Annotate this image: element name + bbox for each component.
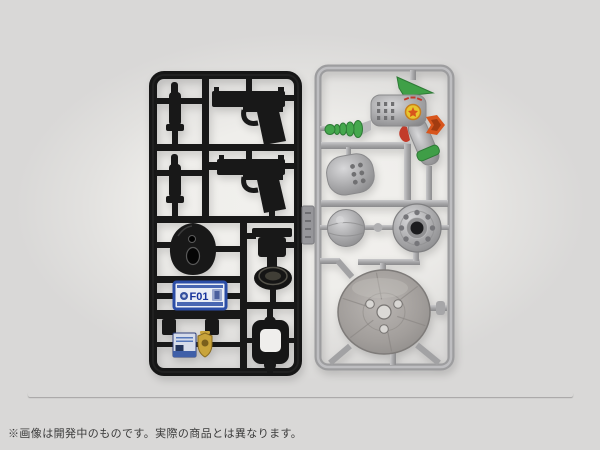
ray-gun-vents [377, 102, 394, 120]
runner-tag [302, 206, 314, 244]
long-rod-part [28, 392, 573, 397]
saucer-part [338, 270, 430, 354]
dome-part [328, 210, 365, 247]
license-plate-text: F01 [190, 291, 209, 303]
magazine-part-bottom [156, 154, 204, 216]
ray-gun-rings [325, 121, 363, 138]
magazine-part-top [156, 82, 204, 145]
product-photo: F01 [0, 0, 600, 450]
pistol-part-threaded-barrel [203, 151, 294, 217]
badge-part [198, 331, 242, 357]
flat-base-part [242, 228, 295, 303]
black-sprue: F01 [148, 70, 303, 377]
teardrop-shell-part [156, 223, 242, 275]
ray-gun-part [325, 77, 445, 169]
pod-part [324, 151, 377, 198]
pistol-part-top [212, 76, 294, 145]
license-plate-part: F01 [156, 282, 242, 309]
silver-sprue [300, 62, 457, 377]
ray-gun-muzzle-tip [426, 115, 445, 135]
id-card-part [156, 333, 199, 357]
hub-part [393, 204, 441, 252]
buckle-frame-part [245, 309, 295, 373]
disclaimer-caption: ※画像は開発中のものです。実際の商品とは異なります。 [8, 425, 302, 441]
